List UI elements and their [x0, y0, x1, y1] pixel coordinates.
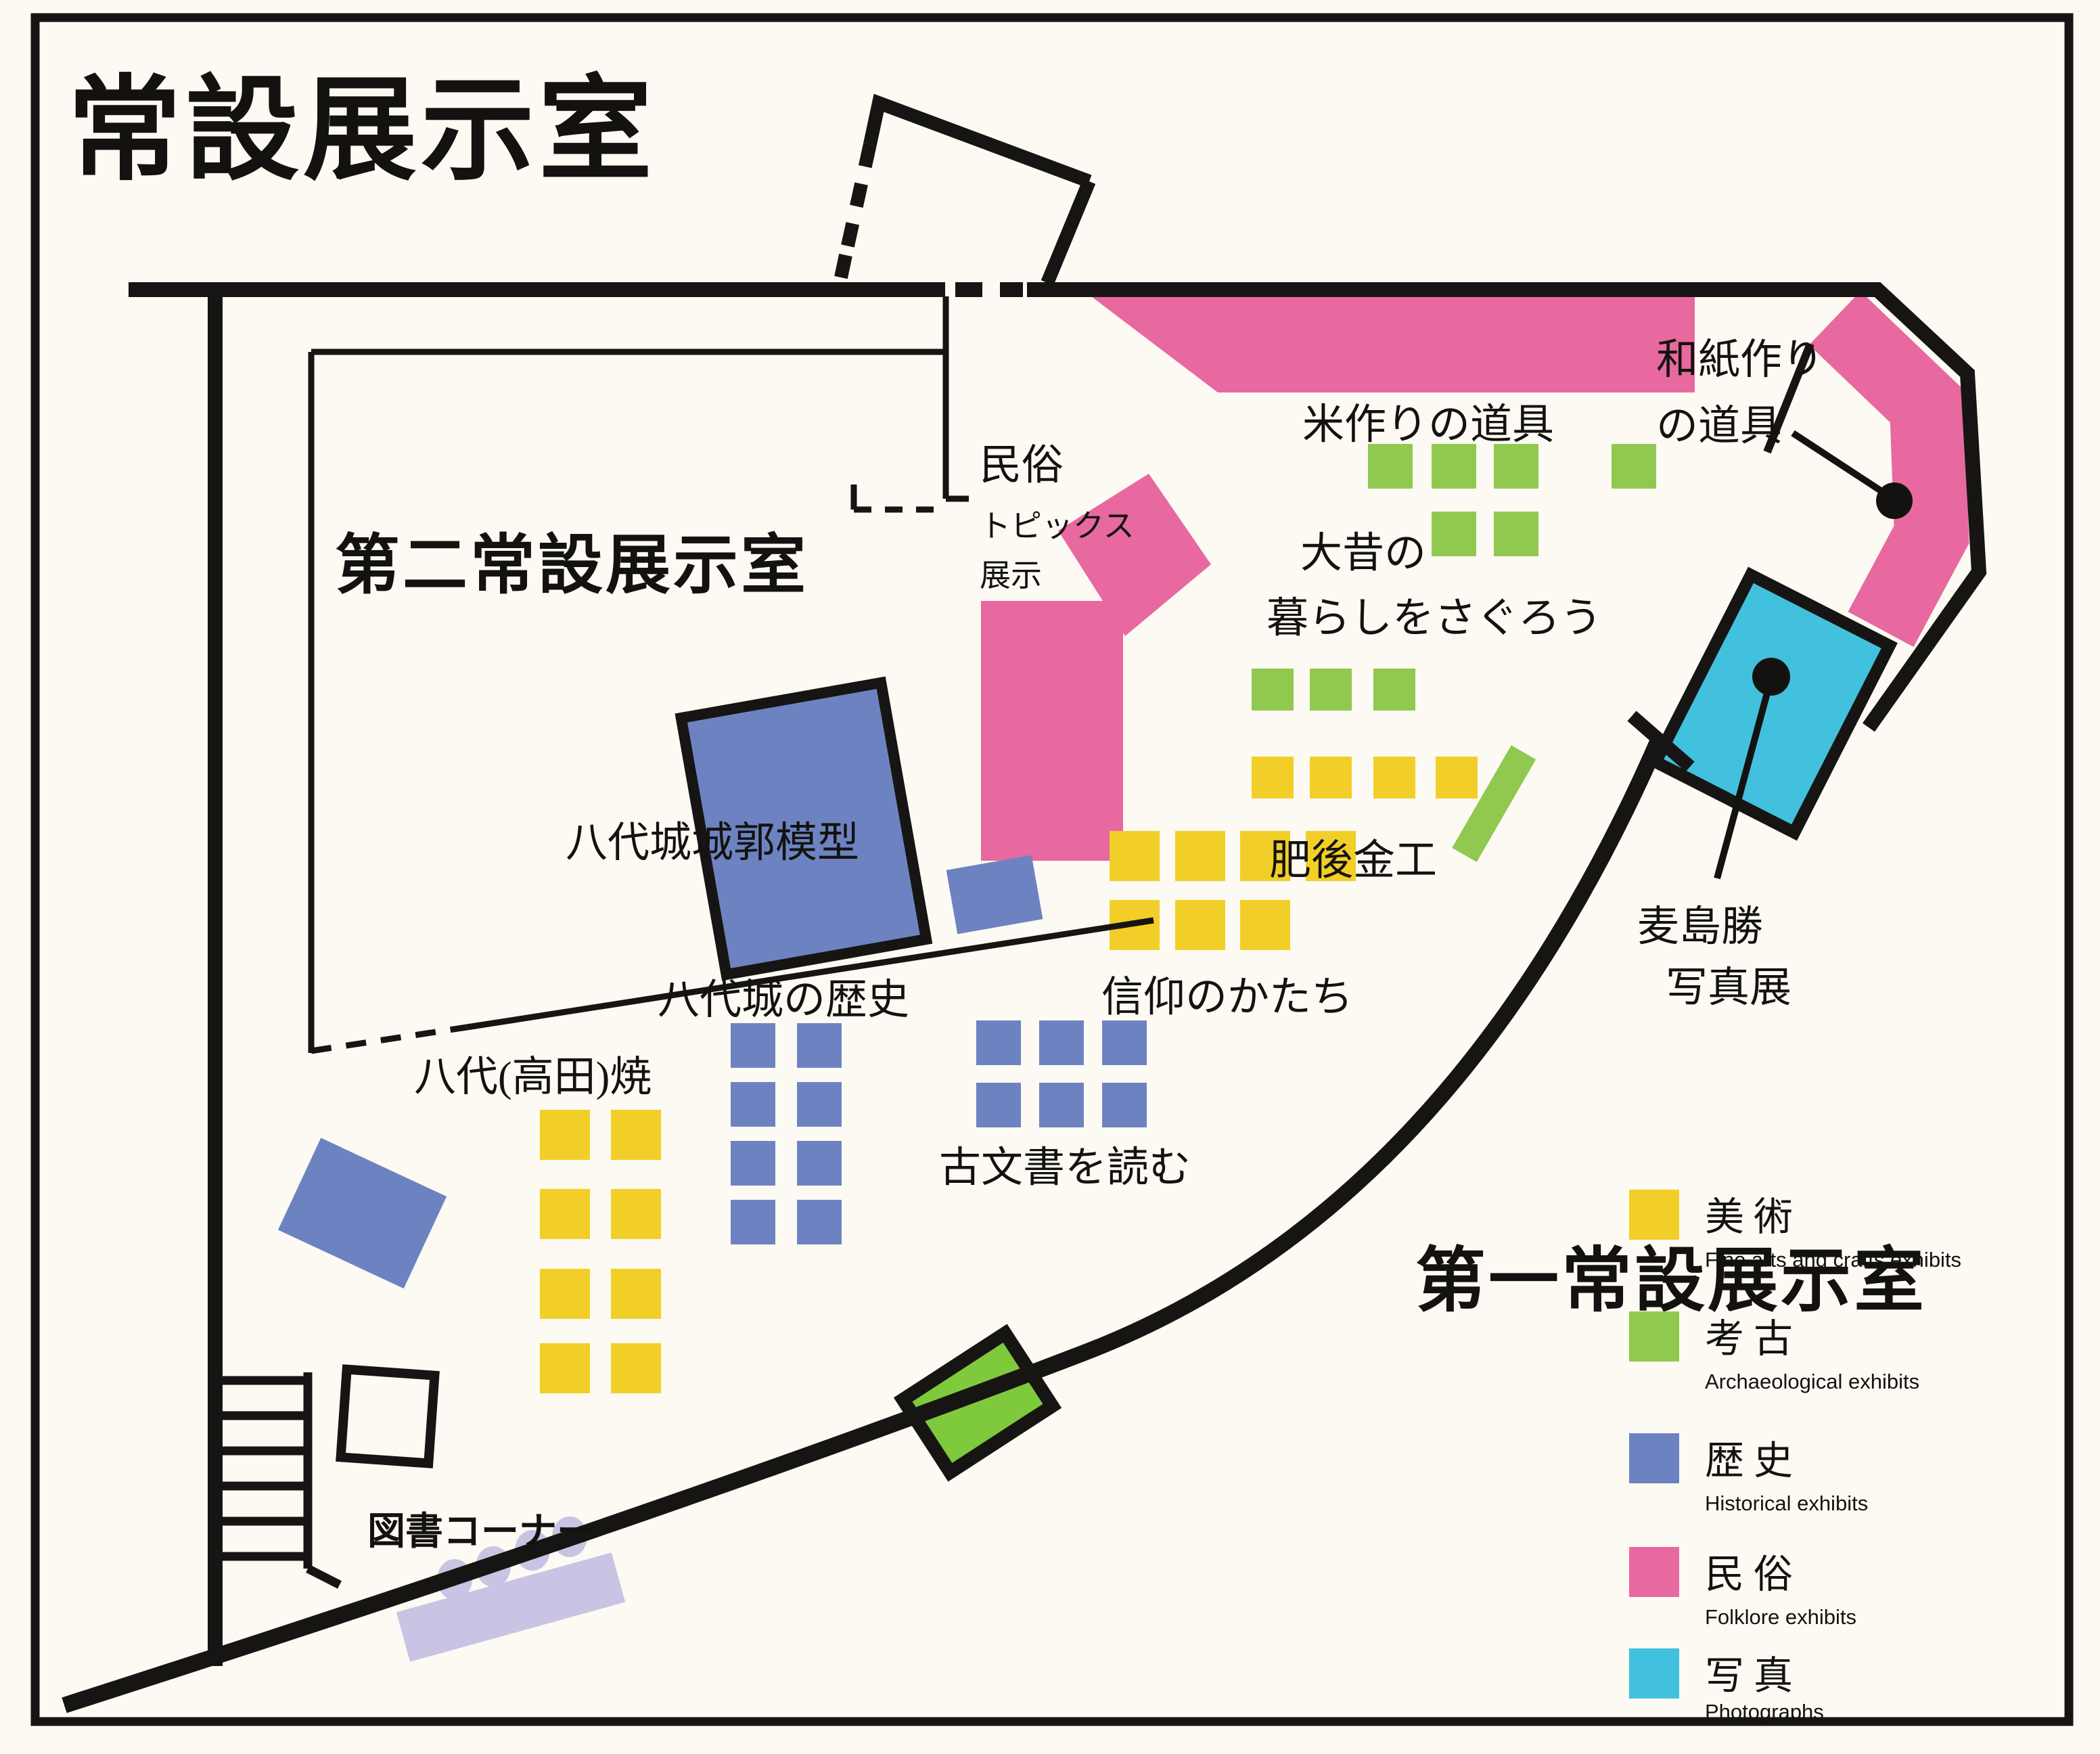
label-higo-kinko: 肥後金工	[1269, 838, 1437, 884]
exhibit-case	[540, 1189, 590, 1239]
label-omukashi-line2: 暮らしをさぐろう	[1266, 595, 1602, 642]
exhibit-case	[797, 1141, 842, 1186]
exhibit-case	[1494, 512, 1538, 556]
exhibit-case	[731, 1200, 775, 1244]
legend-jp-folklore: 民俗	[1705, 1552, 1802, 1596]
komonjo-history-cases	[976, 1020, 1147, 1127]
exhibit-case	[797, 1200, 842, 1244]
castle-model-side-case	[946, 855, 1043, 935]
label-castle-history: 八代城の歴史	[658, 977, 909, 1023]
label-library-corner: 図書コーナー	[367, 1511, 595, 1553]
exhibit-case	[1310, 669, 1352, 711]
exhibit-case	[731, 1082, 775, 1127]
exhibit-case	[1252, 669, 1294, 711]
legend-item-history: 歴史 Historical exhibits	[1629, 1433, 1868, 1515]
room2-title: 第二常設展示室	[335, 529, 808, 602]
exhibit-case	[1436, 757, 1478, 799]
exhibit-case	[540, 1343, 590, 1393]
vestibule-east-wall	[1047, 181, 1089, 283]
label-castle-model: 八代城城郭模型	[566, 820, 859, 866]
exhibit-case	[611, 1189, 661, 1239]
legend-jp-photographs: 写真	[1705, 1654, 1802, 1698]
exhibit-case	[1494, 444, 1538, 489]
label-minzoku-line1: 民俗	[980, 443, 1064, 489]
exhibit-case	[1175, 900, 1225, 950]
exhibit-case	[976, 1083, 1021, 1127]
exhibit-case	[1368, 444, 1413, 489]
exhibit-case	[1039, 1083, 1084, 1127]
legend-item-folklore: 民俗 Folklore exhibits	[1629, 1547, 1856, 1629]
exhibit-case	[1102, 1020, 1147, 1065]
exhibit-case	[731, 1023, 775, 1068]
exhibit-case	[1612, 444, 1656, 489]
exhibit-case	[797, 1082, 842, 1127]
room2-wall-right	[946, 296, 969, 499]
label-omukashi-line1: 大昔の	[1300, 531, 1426, 577]
legend-item-photographs: 写真 Photographs	[1629, 1648, 1824, 1724]
exhibit-case	[797, 1023, 842, 1068]
room2-wall-bottom-dashed	[311, 1027, 467, 1051]
legend-jp-fine-arts: 美術	[1705, 1195, 1802, 1239]
legend-en-folklore: Folklore exhibits	[1705, 1605, 1856, 1629]
legend-swatch-folklore	[1629, 1547, 1679, 1597]
library-desk	[396, 1552, 625, 1661]
higo-fine-arts-cases	[1252, 757, 1478, 799]
exhibit-case	[1039, 1020, 1084, 1065]
label-minzoku-line2: トピックス	[980, 509, 1135, 543]
exhibit-case	[1310, 757, 1352, 799]
exhibit-case	[1110, 831, 1160, 881]
legend-swatch-photographs	[1629, 1648, 1679, 1699]
label-minzoku-line3: 展示	[980, 558, 1042, 593]
exhibit-case	[1240, 900, 1290, 950]
page-title: 常設展示室	[68, 66, 656, 194]
legend-swatch-archaeology	[1629, 1311, 1679, 1362]
label-washi-line1: 和紙作り	[1656, 337, 1824, 383]
exhibit-case	[611, 1343, 661, 1393]
exhibit-case	[1252, 757, 1294, 799]
legend-en-fine-arts: Fine arts and crafts exhibits	[1705, 1248, 1961, 1272]
exhibit-case	[1432, 512, 1476, 556]
label-shinko: 信仰のかたち	[1101, 974, 1353, 1020]
washi-leader-dot	[1876, 482, 1913, 519]
exhibit-case	[1432, 444, 1476, 489]
label-komonjo: 古文書を読む	[939, 1145, 1191, 1191]
label-yatsushiro-yaki: 八代(高田)焼	[414, 1054, 652, 1100]
folklore-topics-lower-area	[981, 601, 1123, 861]
stairs	[223, 1372, 340, 1585]
exhibit-case	[1102, 1083, 1147, 1127]
stairs-step	[308, 1569, 340, 1585]
exhibit-case	[1373, 757, 1415, 799]
legend-en-photographs: Photographs	[1705, 1700, 1824, 1724]
history-angled-case	[278, 1138, 447, 1288]
higo-archaeology-cases	[1252, 669, 1415, 711]
mugishima-leader-dot	[1752, 658, 1790, 696]
vestibule-west-dashed	[846, 144, 870, 255]
exhibit-case	[611, 1269, 661, 1319]
exhibit-case	[540, 1269, 590, 1319]
folklore-band-area	[1086, 292, 1695, 392]
vestibule-north-wall	[870, 103, 1089, 181]
exhibit-case	[611, 1110, 661, 1160]
legend-jp-archaeology: 考古	[1705, 1317, 1802, 1361]
entrance-vestibule-south	[903, 1333, 1053, 1472]
floor-plan-page: 常設展示室 第二常設展示室 第一常設展示室 米作りの道具 和紙作り の道具 民俗…	[0, 0, 2100, 1754]
legend-item-archaeology: 考古 Archaeological exhibits	[1629, 1311, 1919, 1393]
label-mugishima-line2: 写真展	[1666, 965, 1791, 1011]
exhibit-case	[976, 1020, 1021, 1065]
castle-history-cases	[731, 1023, 842, 1244]
label-washi-line2: の道具	[1656, 403, 1782, 449]
exhibit-case	[731, 1141, 775, 1186]
yaki-fine-arts-cases	[540, 1110, 661, 1393]
exhibit-case	[540, 1110, 590, 1160]
floor-plan-svg: 常設展示室 第二常設展示室 第一常設展示室 米作りの道具 和紙作り の道具 民俗…	[0, 0, 2100, 1754]
exhibit-case	[1175, 831, 1225, 881]
label-mugishima-line1: 麦島勝	[1637, 904, 1763, 950]
exhibit-case	[1373, 669, 1415, 711]
vestibule-west-stub	[841, 255, 846, 277]
washi-leader-line	[1793, 433, 1889, 496]
label-rice-tools: 米作りの道具	[1302, 402, 1554, 448]
legend-jp-history: 歴史	[1705, 1439, 1802, 1483]
legend-swatch-history	[1629, 1433, 1679, 1483]
white-case	[341, 1370, 435, 1464]
legend-en-history: Historical exhibits	[1705, 1491, 1868, 1515]
legend-en-archaeology: Archaeological exhibits	[1705, 1370, 1919, 1393]
legend-swatch-fine-arts	[1629, 1190, 1679, 1240]
